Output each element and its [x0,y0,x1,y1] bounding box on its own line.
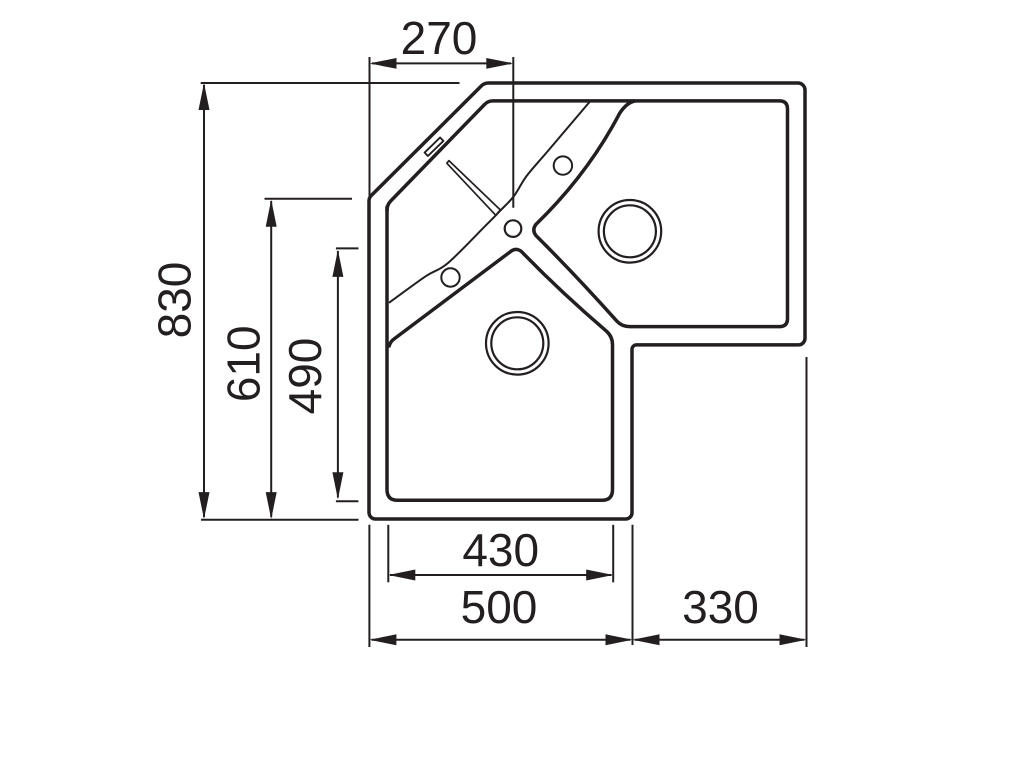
svg-text:610: 610 [218,325,270,402]
svg-text:500: 500 [461,581,538,633]
svg-text:430: 430 [462,524,539,576]
svg-text:490: 490 [279,338,331,415]
svg-text:270: 270 [401,12,478,64]
svg-text:830: 830 [149,262,201,339]
svg-text:330: 330 [682,581,759,633]
